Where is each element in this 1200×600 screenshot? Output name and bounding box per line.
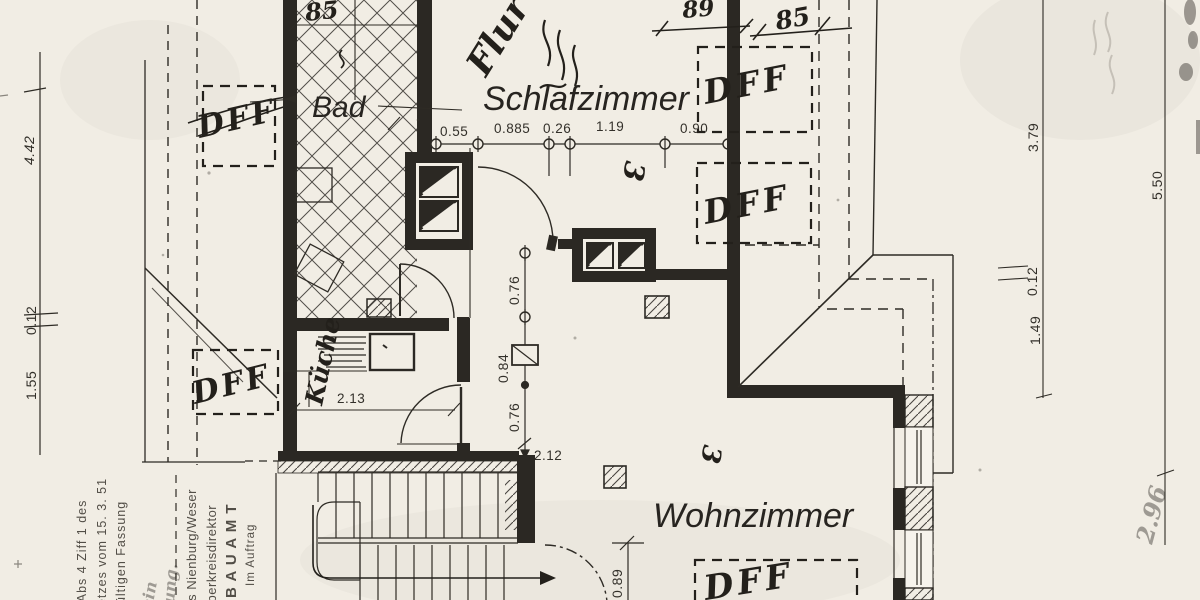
bad-left-wall (283, 0, 297, 458)
dim-1-49: 1.49 (1027, 316, 1043, 345)
schlafzimmer-label: Schlafzimmer (483, 80, 691, 118)
wall-pier (905, 395, 933, 427)
stamp-authority4: Im Auftrag (245, 524, 257, 586)
stair-wall-hatch (505, 480, 518, 530)
dim-3-79: 3.79 (1025, 123, 1041, 152)
dim-5-50: 5.50 (1149, 171, 1165, 200)
dim-2-12: 2.12 (534, 448, 562, 463)
wall-pier-3 (905, 588, 933, 600)
stamp-law1: 7 Abs 4 Ziff 1 des (75, 500, 89, 600)
kueche-right-wall (457, 318, 470, 382)
bad-right-wall (417, 0, 432, 160)
dim-0-885: 0.885 (494, 121, 530, 136)
floor-plan-scan: 4.42 0.12 1.55 DFF DFF (0, 0, 1200, 600)
stamp-authority2: r Oberkreisdirektor (204, 505, 219, 600)
window-1 (905, 427, 933, 487)
stamp-note1: ein (137, 580, 161, 600)
stair-right-wall (517, 455, 535, 543)
flue-stub-3 (604, 466, 626, 488)
flue-stub (367, 299, 391, 317)
stamp-authority1: eis Nienburg/Weser (184, 489, 199, 600)
wall-pier-2 (905, 487, 933, 530)
floorplan-svg: 4.42 0.12 1.55 DFF DFF (0, 0, 1200, 600)
dim-0-76-a: 0.76 (506, 276, 522, 305)
dim-1-55: 1.55 (23, 371, 39, 400)
stamp-note2: ung. (159, 563, 181, 600)
dim-0-89: 0.89 (609, 569, 625, 598)
dim-0-84: 0.84 (495, 354, 511, 383)
dim-0-12-right: 0.12 (1024, 267, 1040, 296)
stamp-authority3: B A U A M T (223, 503, 240, 598)
flue-stub-2 (645, 296, 669, 318)
bad-bottom-wall (283, 318, 449, 331)
wall-stub-2 (893, 578, 905, 600)
stair-hatched-wall (278, 461, 527, 473)
wall-stub (893, 488, 905, 530)
stair-top-wall (278, 451, 519, 461)
dim-85-hand: 85 (772, 1, 812, 36)
dim-85-bad: 85 (303, 0, 340, 27)
dim-4-42: 4.42 (21, 136, 37, 165)
dim-0-55: 0.55 (440, 124, 468, 139)
window-2 (905, 530, 933, 588)
dim-0-12-left: 0.12 (23, 306, 39, 335)
wohnzimmer-label: Wohnzimmer (653, 497, 855, 535)
stamp-law2: netzes vom 15. 3. 51 (95, 478, 109, 600)
bad-label: Bad (312, 91, 367, 124)
dim-2-13: 2.13 (337, 391, 365, 406)
dim-1-19: 1.19 (596, 119, 624, 134)
dim-89-hand: 89 (680, 0, 715, 24)
stamp-law3: nültigen Fassung (114, 501, 128, 600)
chimney-block-1 (405, 152, 473, 250)
dim-0-90: 0.90 (680, 121, 708, 136)
dim-0-76-b: 0.76 (506, 403, 522, 432)
dim-0-26: 0.26 (543, 121, 571, 136)
partition-wall (656, 269, 728, 280)
